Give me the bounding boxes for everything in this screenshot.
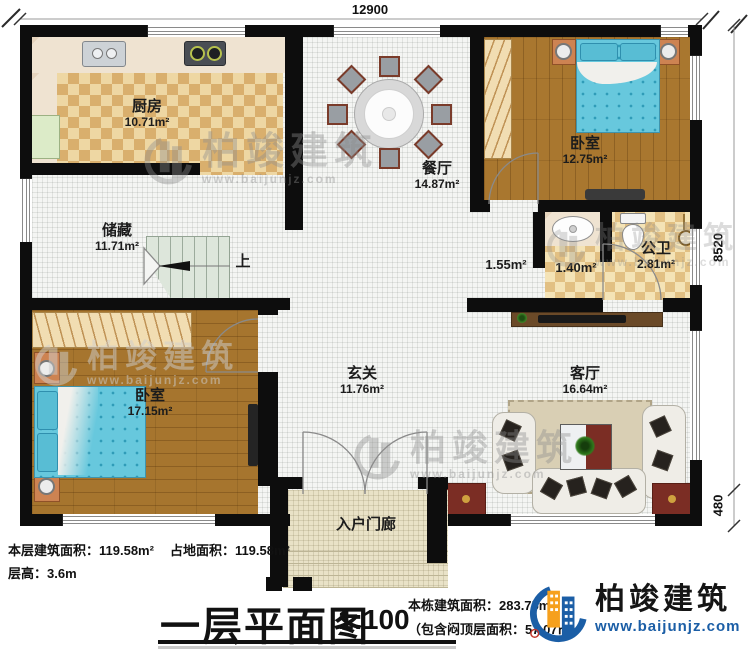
floor-area-text: 本层建筑面积：119.58m² <box>8 540 154 559</box>
bedroom-left-door <box>206 319 258 372</box>
dining-label: 餐厅 14.87m² <box>395 161 479 191</box>
brand-logo: 柏竣建筑 www.baijunjz.com <box>527 583 740 643</box>
foyer-label: 玄关 11.76m² <box>322 366 402 396</box>
bedroom-left-label: 卧室 17.15m² <box>106 388 194 418</box>
plan-scale: 1:100 <box>338 604 410 636</box>
land-area-text: 占地面积：119.58m² <box>170 540 290 559</box>
title-underline-light <box>158 646 456 649</box>
brand-logo-icon <box>527 583 589 643</box>
dimension-right-lower: 480 <box>711 484 726 528</box>
floor-plan-page: 厨房 10.71m² 储藏 11.71m² 餐厅 14.87m² 卧室 12.7… <box>0 0 750 651</box>
bathroom-label: 公卫 2.81m² <box>628 241 684 271</box>
brand-url: www.baijunjz.com <box>595 618 740 635</box>
porch-label: 入户门廊 <box>318 517 414 534</box>
entry-double-door <box>303 432 427 494</box>
kitchen-label: 厨房 10.71m² <box>103 99 191 129</box>
washroom-area-label: 1.40m² <box>548 261 604 275</box>
bedroom-top-label: 卧室 12.75m² <box>542 136 628 166</box>
area-summary-left: 本层建筑面积：119.58m² 占地面积：119.58m² 层高：3.6m <box>8 540 308 582</box>
stairs-up-label: 上 <box>232 254 254 271</box>
floor-height-text: 层高：3.6m <box>8 563 308 582</box>
dimension-top: 12900 <box>330 2 410 17</box>
brand-name: 柏竣建筑 <box>595 583 740 616</box>
hall-small-area-label: 1.55m² <box>478 258 534 272</box>
living-label: 客厅 16.64m² <box>543 366 627 396</box>
dimension-right-upper: 8520 <box>711 218 726 278</box>
bedroom-top-door <box>489 153 538 204</box>
title-underline <box>158 640 456 644</box>
storage-label: 储藏 11.71m² <box>75 223 159 253</box>
